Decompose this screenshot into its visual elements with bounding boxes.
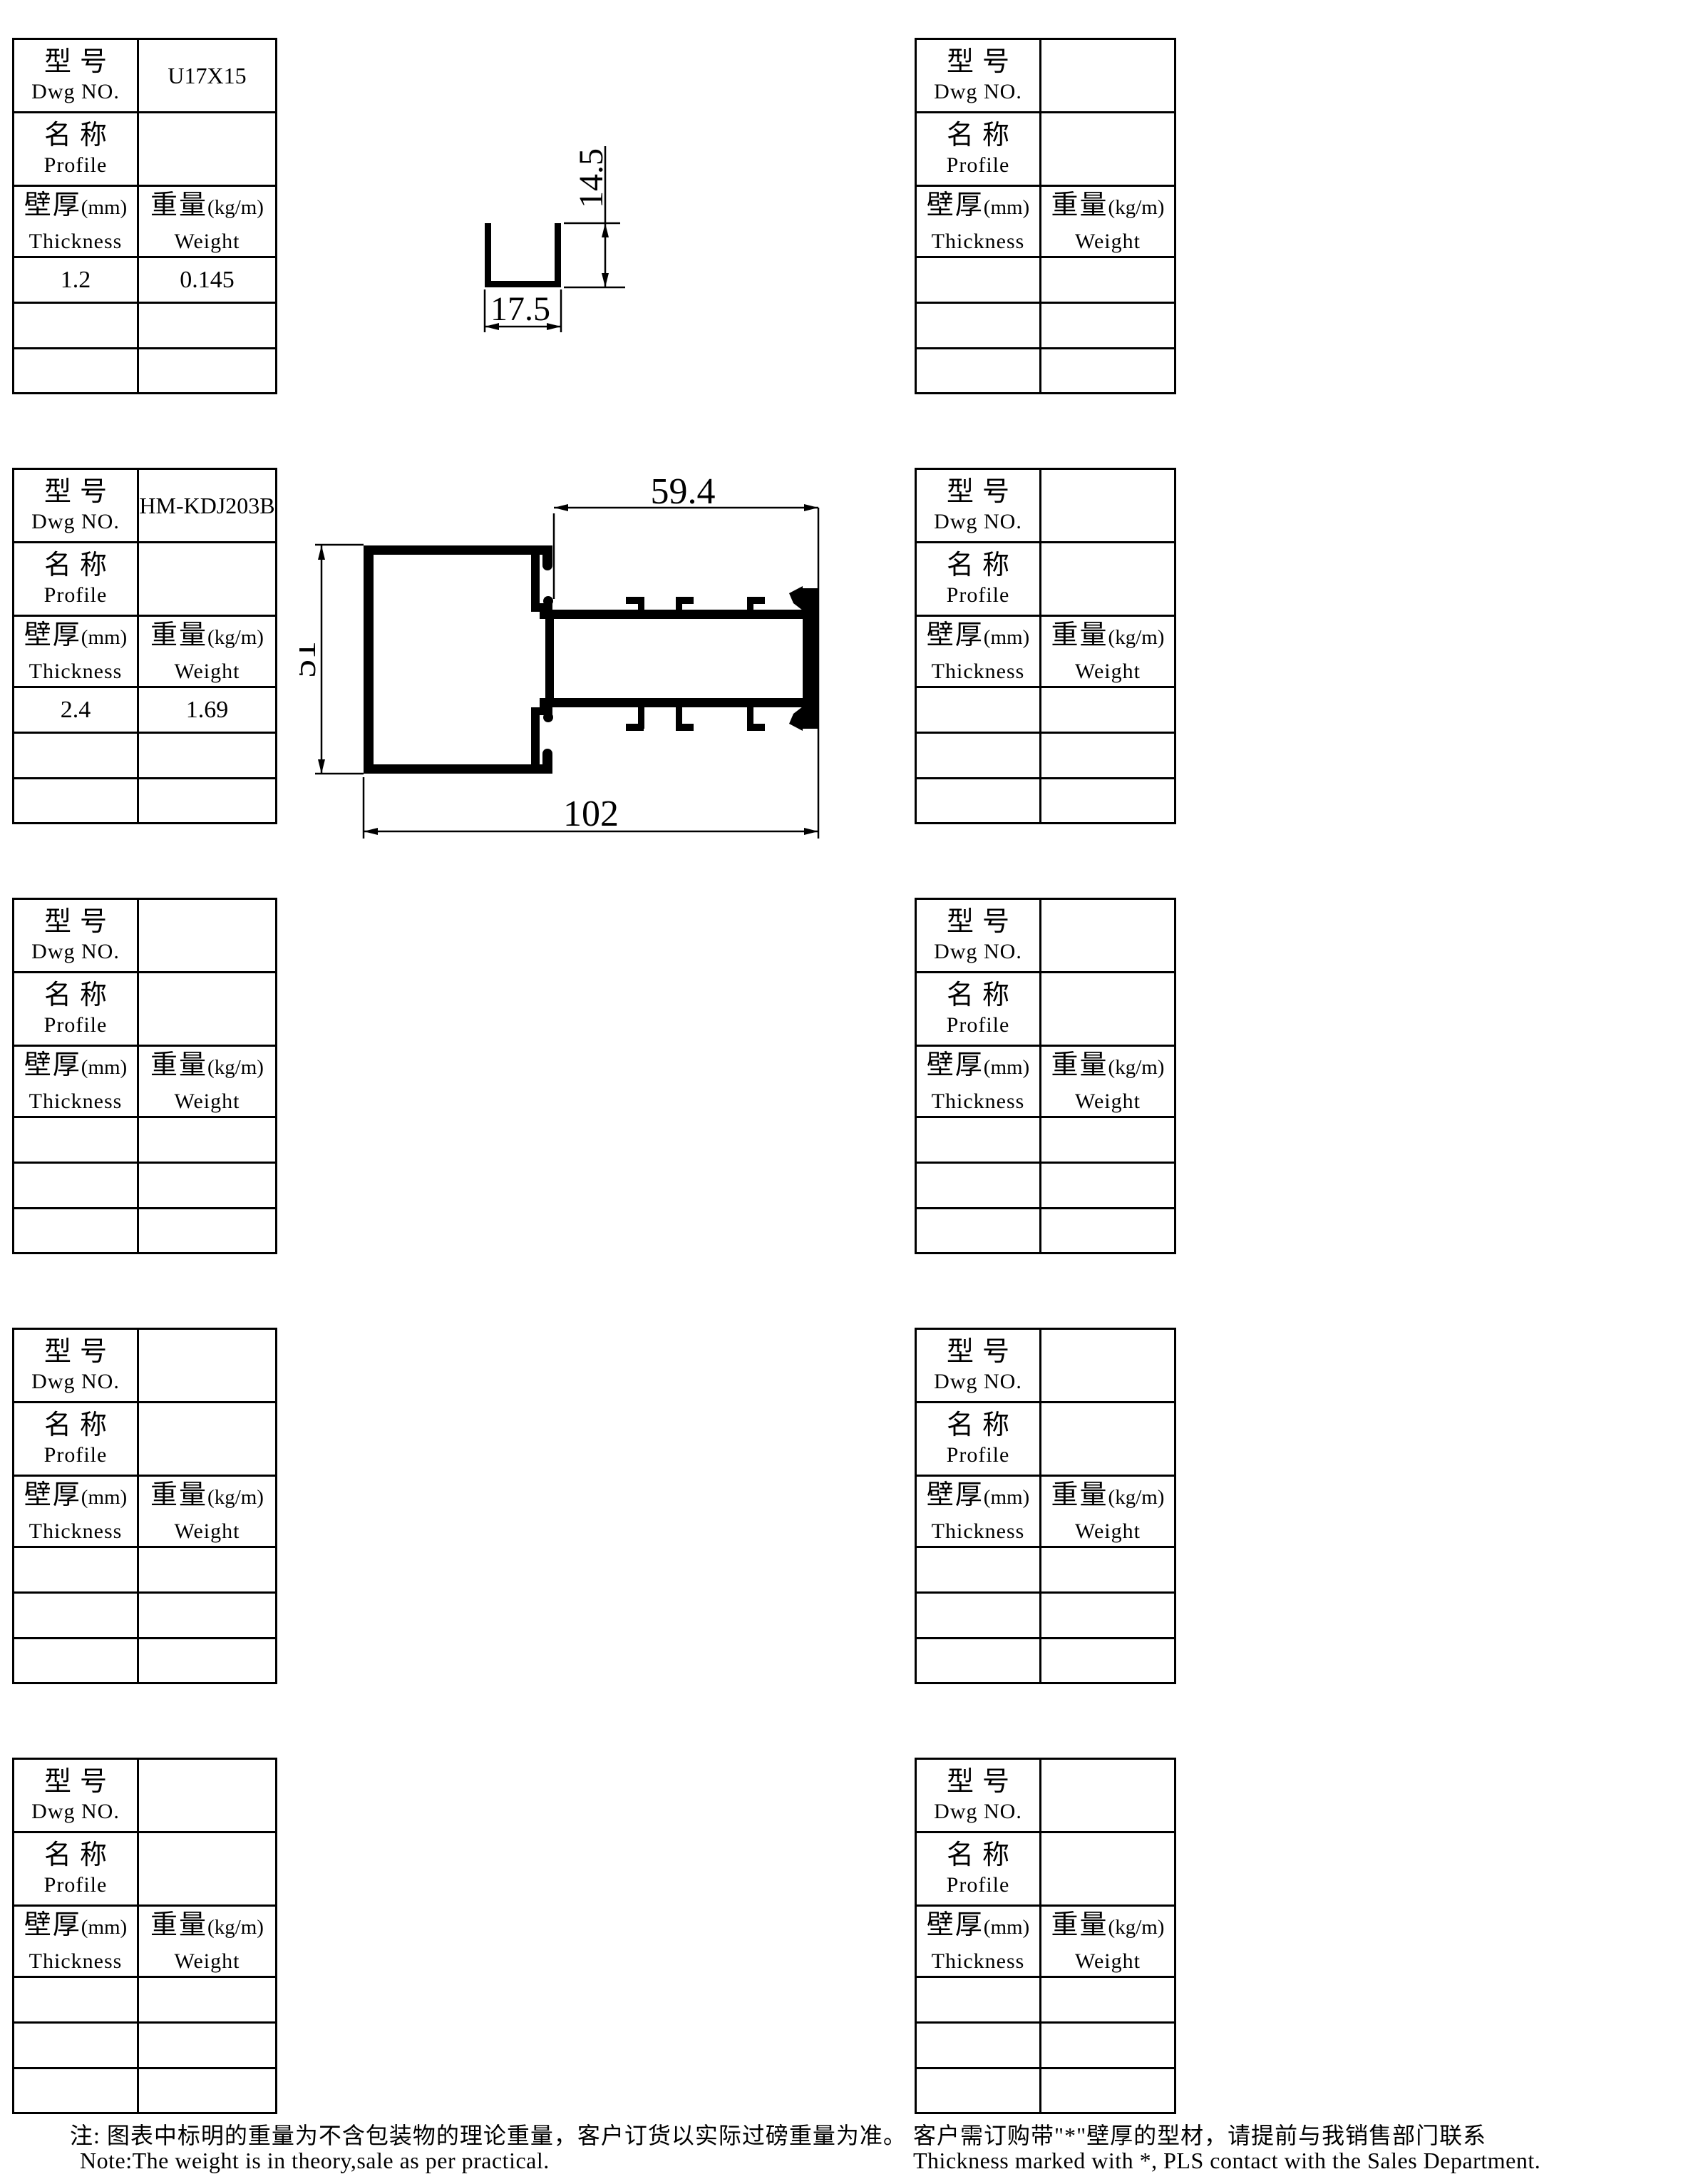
- thickness-label-en: Thickness: [29, 658, 123, 685]
- profile-label-cn: 名称: [36, 119, 115, 152]
- profile-name-label: 名称 Profile: [917, 1831, 1039, 1904]
- thickness-label-cn: 壁厚: [24, 1050, 81, 1080]
- profile-name-label: 名称 Profile: [14, 971, 137, 1045]
- profile-label-en: Profile: [44, 1872, 108, 1899]
- weight-label-en: Weight: [175, 1518, 240, 1545]
- dwg-no-label-cn: 型号: [938, 906, 1018, 938]
- weight-unit: (kg/m): [207, 196, 264, 219]
- arrow-up: [602, 223, 609, 237]
- dwg-no-label-cn: 型号: [938, 1765, 1018, 1798]
- dwg-no-label-en: Dwg NO.: [934, 1798, 1022, 1825]
- weight-header: 重量(kg/m) Weight: [137, 615, 275, 686]
- thickness-value-cell: [14, 1207, 137, 1252]
- dwg-no-value: [1039, 1330, 1174, 1401]
- arrow-left: [364, 828, 378, 835]
- thickness-value-cell: [917, 347, 1039, 392]
- profile-label-cn: 名称: [938, 1839, 1018, 1872]
- profile-label-cn: 名称: [36, 1839, 115, 1872]
- weight-unit: (kg/m): [1108, 1486, 1165, 1509]
- thickness-label-cn: 壁厚: [24, 190, 81, 220]
- thickness-value-cell: [14, 777, 137, 822]
- thickness-label-cn: 壁厚: [927, 620, 984, 650]
- weight-value-cell: [137, 2067, 275, 2112]
- thickness-unit: (mm): [984, 1486, 1029, 1509]
- dwg-no-label-en: Dwg NO.: [31, 1368, 120, 1395]
- weight-header: 重量(kg/m) Weight: [1039, 1475, 1174, 1546]
- weight-value-cell: [137, 732, 275, 777]
- dwg-no-label-en: Dwg NO.: [934, 508, 1022, 535]
- weight-value-cell: [1039, 1976, 1174, 2021]
- thickness-header: 壁厚(mm) Thickness: [917, 185, 1039, 256]
- profile-name-value: [1039, 1831, 1174, 1904]
- profile-name-value: [137, 541, 275, 615]
- dwg-no-label: 型号 Dwg NO.: [14, 900, 137, 971]
- profile-label-cn: 名称: [938, 119, 1018, 152]
- dwg-no-label: 型号 Dwg NO.: [917, 1760, 1039, 1831]
- profile-spec-table: 型号 Dwg NO. HM-KDJ203B 名称 Profile 壁厚(mm) …: [12, 468, 277, 824]
- thickness-unit: (mm): [81, 196, 127, 219]
- thickness-value-cell: [917, 1162, 1039, 1207]
- profile-spec-table: 型号 Dwg NO. 名称 Profile 壁厚(mm) Thickness 重…: [915, 898, 1176, 1254]
- thickness-label-cn: 壁厚: [24, 620, 81, 650]
- weight-value-cell: [137, 302, 275, 347]
- dwg-no-label-cn: 型号: [36, 46, 115, 78]
- weight-unit: (kg/m): [1108, 1916, 1165, 1939]
- dwg-no-label-cn: 型号: [938, 46, 1018, 78]
- profile-name-label: 名称 Profile: [14, 541, 137, 615]
- dwg-no-label: 型号 Dwg NO.: [14, 470, 137, 541]
- dwg-no-label-en: Dwg NO.: [31, 938, 120, 965]
- thickness-value-cell: [917, 2021, 1039, 2067]
- thickness-value-cell: [14, 2067, 137, 2112]
- thickness-value-cell: [14, 732, 137, 777]
- kdj-profile-drawing: 59.4 51 102: [299, 449, 863, 856]
- weight-header: 重量(kg/m) Weight: [1039, 615, 1174, 686]
- arrow-left: [554, 504, 568, 511]
- weight-value-cell: [1039, 347, 1174, 392]
- thickness-value-cell: [917, 732, 1039, 777]
- weight-label-en: Weight: [1075, 1948, 1141, 1975]
- dwg-no-label-en: Dwg NO.: [31, 78, 120, 106]
- thickness-label-cn: 壁厚: [24, 1480, 81, 1510]
- arrow-up: [318, 545, 325, 560]
- dwg-no-label: 型号 Dwg NO.: [14, 1330, 137, 1401]
- profile-label-en: Profile: [947, 152, 1010, 179]
- thickness-value-cell: [14, 2021, 137, 2067]
- thickness-header: 壁厚(mm) Thickness: [917, 1904, 1039, 1976]
- profile-name-label: 名称 Profile: [14, 111, 137, 185]
- dwg-no-value: HM-KDJ203B: [137, 470, 275, 541]
- thickness-label-cn: 壁厚: [927, 190, 984, 220]
- thickness-value-cell: [917, 1591, 1039, 1637]
- thickness-unit: (mm): [81, 1486, 127, 1509]
- thickness-value-cell: [14, 347, 137, 392]
- weight-unit: (kg/m): [207, 1916, 264, 1939]
- dwg-no-label: 型号 Dwg NO.: [14, 1760, 137, 1831]
- thickness-value-cell: [14, 302, 137, 347]
- thickness-label-en: Thickness: [29, 228, 123, 255]
- footnote-right-cn: 客户需订购带"*"壁厚的型材，请提前与我销售部门联系: [913, 2118, 1486, 2150]
- profile-name-label: 名称 Profile: [917, 971, 1039, 1045]
- profile-name-value: [1039, 971, 1174, 1045]
- thickness-unit: (mm): [81, 1056, 127, 1079]
- profile-name-label: 名称 Profile: [917, 1401, 1039, 1475]
- thickness-value-cell: [917, 777, 1039, 822]
- profile-label-en: Profile: [44, 152, 108, 179]
- dwg-no-label: 型号 Dwg NO.: [917, 1330, 1039, 1401]
- weight-label-cn: 重量: [1051, 1910, 1108, 1940]
- weight-value-cell: [1039, 1546, 1174, 1591]
- profile-label-en: Profile: [44, 1012, 108, 1039]
- dwg-no-label-en: Dwg NO.: [934, 1368, 1022, 1395]
- dwg-no-value: [1039, 470, 1174, 541]
- footnote-left-cn: 注: 图表中标明的重量为不含包装物的理论重量，客户订货以实际过磅重量为准。: [70, 2118, 907, 2150]
- profile-name-label: 名称 Profile: [14, 1401, 137, 1475]
- profile-name-label: 名称 Profile: [917, 111, 1039, 185]
- thickness-value-cell: [14, 1546, 137, 1591]
- thickness-value-cell: 1.2: [14, 256, 137, 302]
- footnote-right-en: Thickness marked with *, PLS contact wit…: [913, 2148, 1540, 2174]
- weight-value-cell: [137, 1637, 275, 1682]
- profile-name-value: [137, 1401, 275, 1475]
- dim-side-text: 51: [299, 641, 324, 678]
- dwg-no-value: [137, 1760, 275, 1831]
- thickness-unit: (mm): [984, 1056, 1029, 1079]
- weight-value-cell: [1039, 256, 1174, 302]
- weight-value-cell: [137, 2021, 275, 2067]
- weight-value-cell: [137, 1546, 275, 1591]
- arrow-down: [602, 273, 609, 287]
- weight-header: 重量(kg/m) Weight: [137, 1475, 275, 1546]
- dwg-no-label-cn: 型号: [938, 476, 1018, 508]
- dwg-no-label: 型号 Dwg NO.: [14, 40, 137, 111]
- weight-header: 重量(kg/m) Weight: [137, 1904, 275, 1976]
- weight-value-cell: [1039, 777, 1174, 822]
- dwg-no-value: [137, 900, 275, 971]
- weight-unit: (kg/m): [207, 626, 264, 649]
- weight-label-cn: 重量: [150, 620, 207, 650]
- weight-header: 重量(kg/m) Weight: [1039, 1045, 1174, 1116]
- profile-spec-table: 型号 Dwg NO. 名称 Profile 壁厚(mm) Thickness 重…: [915, 1328, 1176, 1684]
- thickness-unit: (mm): [984, 196, 1029, 219]
- thickness-label-en: Thickness: [932, 1088, 1025, 1115]
- weight-header: 重量(kg/m) Weight: [1039, 1904, 1174, 1976]
- dim-width-text: 17.5: [490, 290, 550, 328]
- thickness-value-cell: [917, 1207, 1039, 1252]
- thickness-value-cell: [917, 686, 1039, 732]
- weight-label-en: Weight: [175, 1088, 240, 1115]
- arrow-right: [804, 828, 818, 835]
- dim-height-text: 14.5: [572, 148, 610, 208]
- profile-name-value: [137, 111, 275, 185]
- weight-label-cn: 重量: [1051, 190, 1108, 220]
- weight-label-cn: 重量: [1051, 620, 1108, 650]
- weight-label-en: Weight: [175, 228, 240, 255]
- dwg-no-label: 型号 Dwg NO.: [917, 470, 1039, 541]
- weight-value-cell: [137, 1207, 275, 1252]
- weight-value-cell: [1039, 302, 1174, 347]
- thickness-value-cell: [14, 1162, 137, 1207]
- weight-label-en: Weight: [1075, 228, 1141, 255]
- weight-value-cell: 1.69: [137, 686, 275, 732]
- thickness-value-cell: [917, 2067, 1039, 2112]
- weight-label-en: Weight: [175, 658, 240, 685]
- weight-value-cell: [137, 777, 275, 822]
- weight-label-en: Weight: [1075, 658, 1141, 685]
- weight-value-cell: [1039, 1637, 1174, 1682]
- profile-label-cn: 名称: [36, 1409, 115, 1442]
- weight-unit: (kg/m): [1108, 626, 1165, 649]
- thickness-label-cn: 壁厚: [927, 1910, 984, 1940]
- thickness-header: 壁厚(mm) Thickness: [14, 1045, 137, 1116]
- weight-value-cell: [137, 1162, 275, 1207]
- weight-value-cell: [137, 1591, 275, 1637]
- weight-label-cn: 重量: [150, 1050, 207, 1080]
- thickness-header: 壁厚(mm) Thickness: [14, 1475, 137, 1546]
- weight-value-cell: [1039, 1162, 1174, 1207]
- profile-name-value: [137, 971, 275, 1045]
- weight-value-cell: 0.145: [137, 256, 275, 302]
- thickness-header: 壁厚(mm) Thickness: [917, 1475, 1039, 1546]
- profile-name-value: [1039, 111, 1174, 185]
- dwg-no-label-en: Dwg NO.: [934, 78, 1022, 106]
- profile-label-en: Profile: [947, 1442, 1010, 1469]
- thickness-label-cn: 壁厚: [927, 1480, 984, 1510]
- dwg-no-value: [1039, 40, 1174, 111]
- weight-header: 重量(kg/m) Weight: [1039, 185, 1174, 256]
- dwg-no-value: [137, 1330, 275, 1401]
- weight-value-cell: [1039, 686, 1174, 732]
- dwg-no-label-cn: 型号: [36, 476, 115, 508]
- profile-name-value: [1039, 541, 1174, 615]
- thickness-label-en: Thickness: [932, 1518, 1025, 1545]
- weight-unit: (kg/m): [207, 1486, 264, 1509]
- thickness-label-en: Thickness: [932, 228, 1025, 255]
- thickness-unit: (mm): [81, 626, 127, 649]
- weight-label-cn: 重量: [150, 1910, 207, 1940]
- thickness-header: 壁厚(mm) Thickness: [14, 185, 137, 256]
- dwg-no-value: U17X15: [137, 40, 275, 111]
- thickness-label-en: Thickness: [29, 1088, 123, 1115]
- u-profile-shape: [485, 223, 561, 287]
- profile-label-cn: 名称: [938, 979, 1018, 1012]
- profile-label-cn: 名称: [36, 549, 115, 582]
- footnote-left-en: Note:The weight is in theory,sale as per…: [80, 2148, 550, 2174]
- profile-spec-table: 型号 Dwg NO. 名称 Profile 壁厚(mm) Thickness 重…: [12, 1758, 277, 2114]
- weight-label-en: Weight: [1075, 1088, 1141, 1115]
- weight-unit: (kg/m): [207, 1056, 264, 1079]
- profile-label-cn: 名称: [938, 549, 1018, 582]
- thickness-value-cell: 2.4: [14, 686, 137, 732]
- profile-label-en: Profile: [44, 1442, 108, 1469]
- dwg-no-value: [1039, 1760, 1174, 1831]
- dwg-no-label-en: Dwg NO.: [31, 508, 120, 535]
- weight-value-cell: [1039, 1116, 1174, 1162]
- thickness-value-cell: [14, 1976, 137, 2021]
- dwg-no-label-cn: 型号: [36, 906, 115, 938]
- thickness-value-cell: [917, 302, 1039, 347]
- profile-label-cn: 名称: [36, 979, 115, 1012]
- arrow-down: [318, 759, 325, 774]
- weight-label-en: Weight: [1075, 1518, 1141, 1545]
- thickness-unit: (mm): [81, 1916, 127, 1939]
- profile-spec-table: 型号 Dwg NO. 名称 Profile 壁厚(mm) Thickness 重…: [12, 898, 277, 1254]
- thickness-unit: (mm): [984, 1916, 1029, 1939]
- profile-name-label: 名称 Profile: [14, 1831, 137, 1904]
- weight-label-cn: 重量: [150, 190, 207, 220]
- weight-header: 重量(kg/m) Weight: [137, 185, 275, 256]
- profile-name-value: [137, 1831, 275, 1904]
- dwg-no-label-cn: 型号: [938, 1335, 1018, 1368]
- weight-value-cell: [1039, 1591, 1174, 1637]
- thickness-value-cell: [917, 1116, 1039, 1162]
- profile-label-en: Profile: [947, 1872, 1010, 1899]
- thickness-label-en: Thickness: [932, 658, 1025, 685]
- weight-value-cell: [1039, 2021, 1174, 2067]
- weight-value-cell: [1039, 1207, 1174, 1252]
- thickness-label-en: Thickness: [29, 1518, 123, 1545]
- profile-name-value: [1039, 1401, 1174, 1475]
- dwg-no-label-en: Dwg NO.: [934, 938, 1022, 965]
- thickness-value-cell: [917, 1546, 1039, 1591]
- weight-value-cell: [137, 1976, 275, 2021]
- thickness-header: 壁厚(mm) Thickness: [917, 615, 1039, 686]
- weight-unit: (kg/m): [1108, 196, 1165, 219]
- catalog-page: 14.5 17.5: [0, 0, 1693, 2184]
- profile-label-en: Profile: [44, 582, 108, 609]
- weight-value-cell: [1039, 732, 1174, 777]
- profile-spec-table: 型号 Dwg NO. 名称 Profile 壁厚(mm) Thickness 重…: [915, 38, 1176, 394]
- thickness-header: 壁厚(mm) Thickness: [917, 1045, 1039, 1116]
- profile-name-label: 名称 Profile: [917, 541, 1039, 615]
- thickness-value-cell: [14, 1116, 137, 1162]
- thickness-header: 壁厚(mm) Thickness: [14, 615, 137, 686]
- profile-spec-table: 型号 Dwg NO. U17X15 名称 Profile 壁厚(mm) Thic…: [12, 38, 277, 394]
- weight-header: 重量(kg/m) Weight: [137, 1045, 275, 1116]
- profile-label-cn: 名称: [938, 1409, 1018, 1442]
- thickness-label-en: Thickness: [932, 1948, 1025, 1975]
- weight-unit: (kg/m): [1108, 1056, 1165, 1079]
- u-profile-drawing: 14.5 17.5: [428, 135, 642, 349]
- profile-spec-table: 型号 Dwg NO. 名称 Profile 壁厚(mm) Thickness 重…: [915, 468, 1176, 824]
- dim-top-text: 59.4: [651, 471, 716, 512]
- dwg-no-label-cn: 型号: [36, 1335, 115, 1368]
- dwg-no-label-cn: 型号: [36, 1765, 115, 1798]
- thickness-value-cell: [917, 1637, 1039, 1682]
- dwg-no-value: [1039, 900, 1174, 971]
- profile-spec-table: 型号 Dwg NO. 名称 Profile 壁厚(mm) Thickness 重…: [12, 1328, 277, 1684]
- profile-label-en: Profile: [947, 1012, 1010, 1039]
- weight-value-cell: [1039, 2067, 1174, 2112]
- thickness-value-cell: [14, 1637, 137, 1682]
- weight-value-cell: [137, 347, 275, 392]
- profile-spec-table: 型号 Dwg NO. 名称 Profile 壁厚(mm) Thickness 重…: [915, 1758, 1176, 2114]
- profile-label-en: Profile: [947, 582, 1010, 609]
- weight-label-cn: 重量: [1051, 1050, 1108, 1080]
- thickness-label-cn: 壁厚: [24, 1910, 81, 1940]
- dwg-no-label-en: Dwg NO.: [31, 1798, 120, 1825]
- dwg-no-label: 型号 Dwg NO.: [917, 900, 1039, 971]
- thickness-value-cell: [14, 1591, 137, 1637]
- thickness-label-en: Thickness: [29, 1948, 123, 1975]
- weight-label-cn: 重量: [1051, 1480, 1108, 1510]
- kdj-profile-shape: [364, 545, 818, 774]
- weight-value-cell: [137, 1116, 275, 1162]
- dwg-no-label: 型号 Dwg NO.: [917, 40, 1039, 111]
- thickness-value-cell: [917, 1976, 1039, 2021]
- thickness-unit: (mm): [984, 626, 1029, 649]
- weight-label-cn: 重量: [150, 1480, 207, 1510]
- dim-bottom-text: 102: [563, 794, 619, 834]
- arrow-right: [804, 504, 818, 511]
- weight-label-en: Weight: [175, 1948, 240, 1975]
- thickness-label-cn: 壁厚: [927, 1050, 984, 1080]
- thickness-header: 壁厚(mm) Thickness: [14, 1904, 137, 1976]
- dim-59-4: [554, 508, 818, 839]
- thickness-value-cell: [917, 256, 1039, 302]
